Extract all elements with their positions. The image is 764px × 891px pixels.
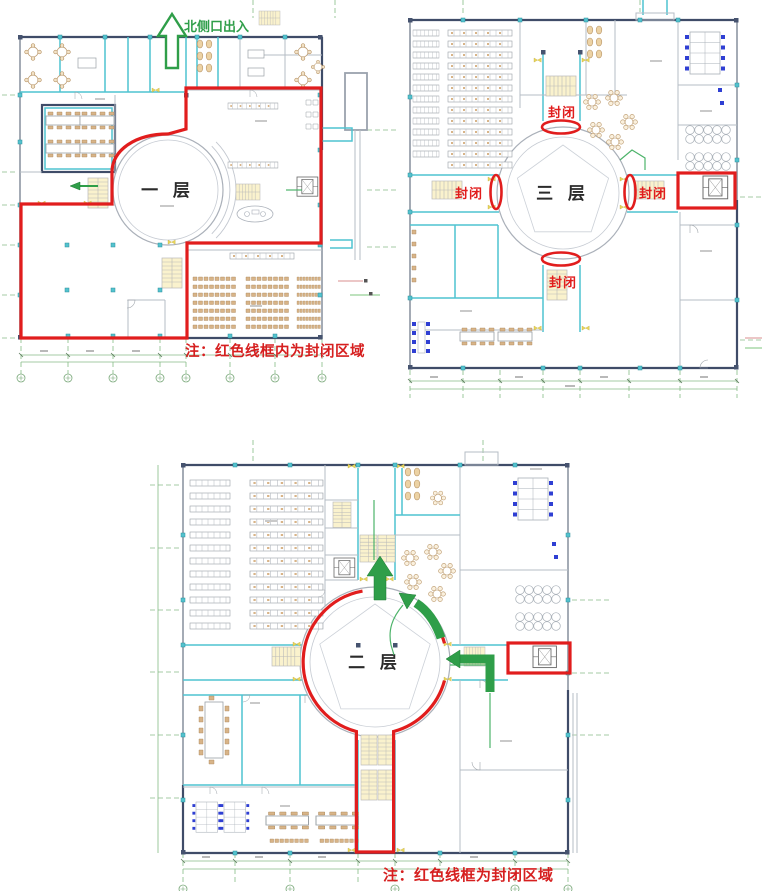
- floor1-auditorium-seats: [193, 253, 320, 329]
- floor3-label: 三 层: [536, 184, 590, 203]
- floor2-west-elevator: [334, 558, 355, 577]
- floor2-plan: 二 层: [150, 440, 620, 891]
- workstations: [685, 32, 725, 74]
- floor2-east-elevator: [533, 646, 556, 668]
- north-exit-label: 北侧口出入: [184, 19, 249, 34]
- library-shelves: [413, 30, 512, 168]
- left-arrow-icon: [446, 650, 490, 692]
- closed-label-left: 封闭: [455, 186, 483, 201]
- floor2-label: 二 层: [348, 653, 402, 672]
- floor3-atrium: 三 层: [497, 127, 629, 259]
- west-conference-table: [199, 696, 229, 764]
- floor1-plan: 一 层: [0, 0, 400, 400]
- closed-label-right: 封闭: [639, 186, 667, 201]
- computer-desks: [192, 802, 221, 832]
- north-exit-arrow-icon: [158, 14, 186, 68]
- computer-desks: [220, 802, 249, 832]
- legend-lines: [745, 338, 762, 348]
- library-shelves: [190, 480, 323, 629]
- closed-label-top: 封闭: [548, 105, 576, 120]
- floor1-atrium: 一 层: [113, 135, 236, 245]
- floor3-plan: 三 层: [400, 0, 764, 400]
- legend-lines: [338, 279, 380, 296]
- floor2-note: 注：红色线框为封闭区域: [383, 866, 554, 884]
- workstations: [513, 478, 553, 520]
- floor3-elevator: [703, 176, 728, 199]
- floor1-elevator: [297, 177, 318, 196]
- computer-chairs: [412, 322, 430, 353]
- drawing-canvas: 一 层: [0, 0, 764, 891]
- floor1-label: 一 层: [141, 181, 195, 200]
- floor1-entrance-steps: [259, 11, 280, 25]
- floor1-note: 注：红色线框内为封闭区域: [185, 342, 365, 360]
- closed-label-bottom: 封闭: [549, 275, 577, 290]
